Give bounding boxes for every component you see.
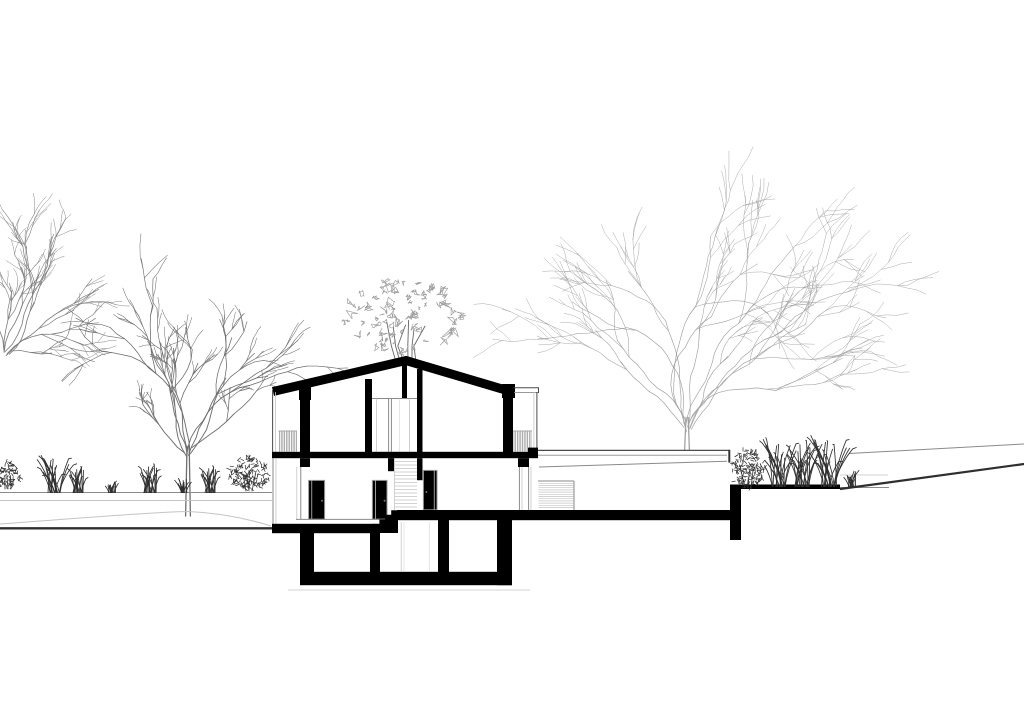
upper-wall-right xyxy=(503,392,513,452)
door-handle xyxy=(425,491,427,493)
section-drawing xyxy=(0,0,1024,724)
annex-connection-stub xyxy=(528,448,538,454)
drawing-page xyxy=(0,0,1024,724)
stair-wall-stub xyxy=(388,458,394,471)
upper-partition-right xyxy=(417,369,423,452)
basement-partition-1 xyxy=(370,533,380,572)
basement-floor-slab xyxy=(300,572,512,585)
door-frame xyxy=(309,480,325,519)
beam-stub-left xyxy=(300,458,310,467)
beam-stub-right xyxy=(518,458,529,467)
door-handle xyxy=(384,500,386,502)
retaining-wall xyxy=(730,485,741,541)
door-handle xyxy=(321,500,323,502)
door-frame xyxy=(423,470,437,509)
door-frame xyxy=(372,480,387,519)
ridge-post xyxy=(402,360,407,399)
partition-below-slab xyxy=(417,458,423,480)
upper-partition-left xyxy=(365,379,372,452)
basement-wall-right xyxy=(497,520,512,585)
terrace-slab xyxy=(397,510,731,520)
door-ground-1 xyxy=(309,480,325,519)
basement-partition-2 xyxy=(438,520,449,572)
floor-slab-upper xyxy=(272,452,538,458)
floor-slab-lower-level xyxy=(272,524,374,533)
door-ground-2 xyxy=(372,480,387,519)
door-ground-3 xyxy=(423,470,437,509)
upper-wall-left xyxy=(300,392,310,452)
